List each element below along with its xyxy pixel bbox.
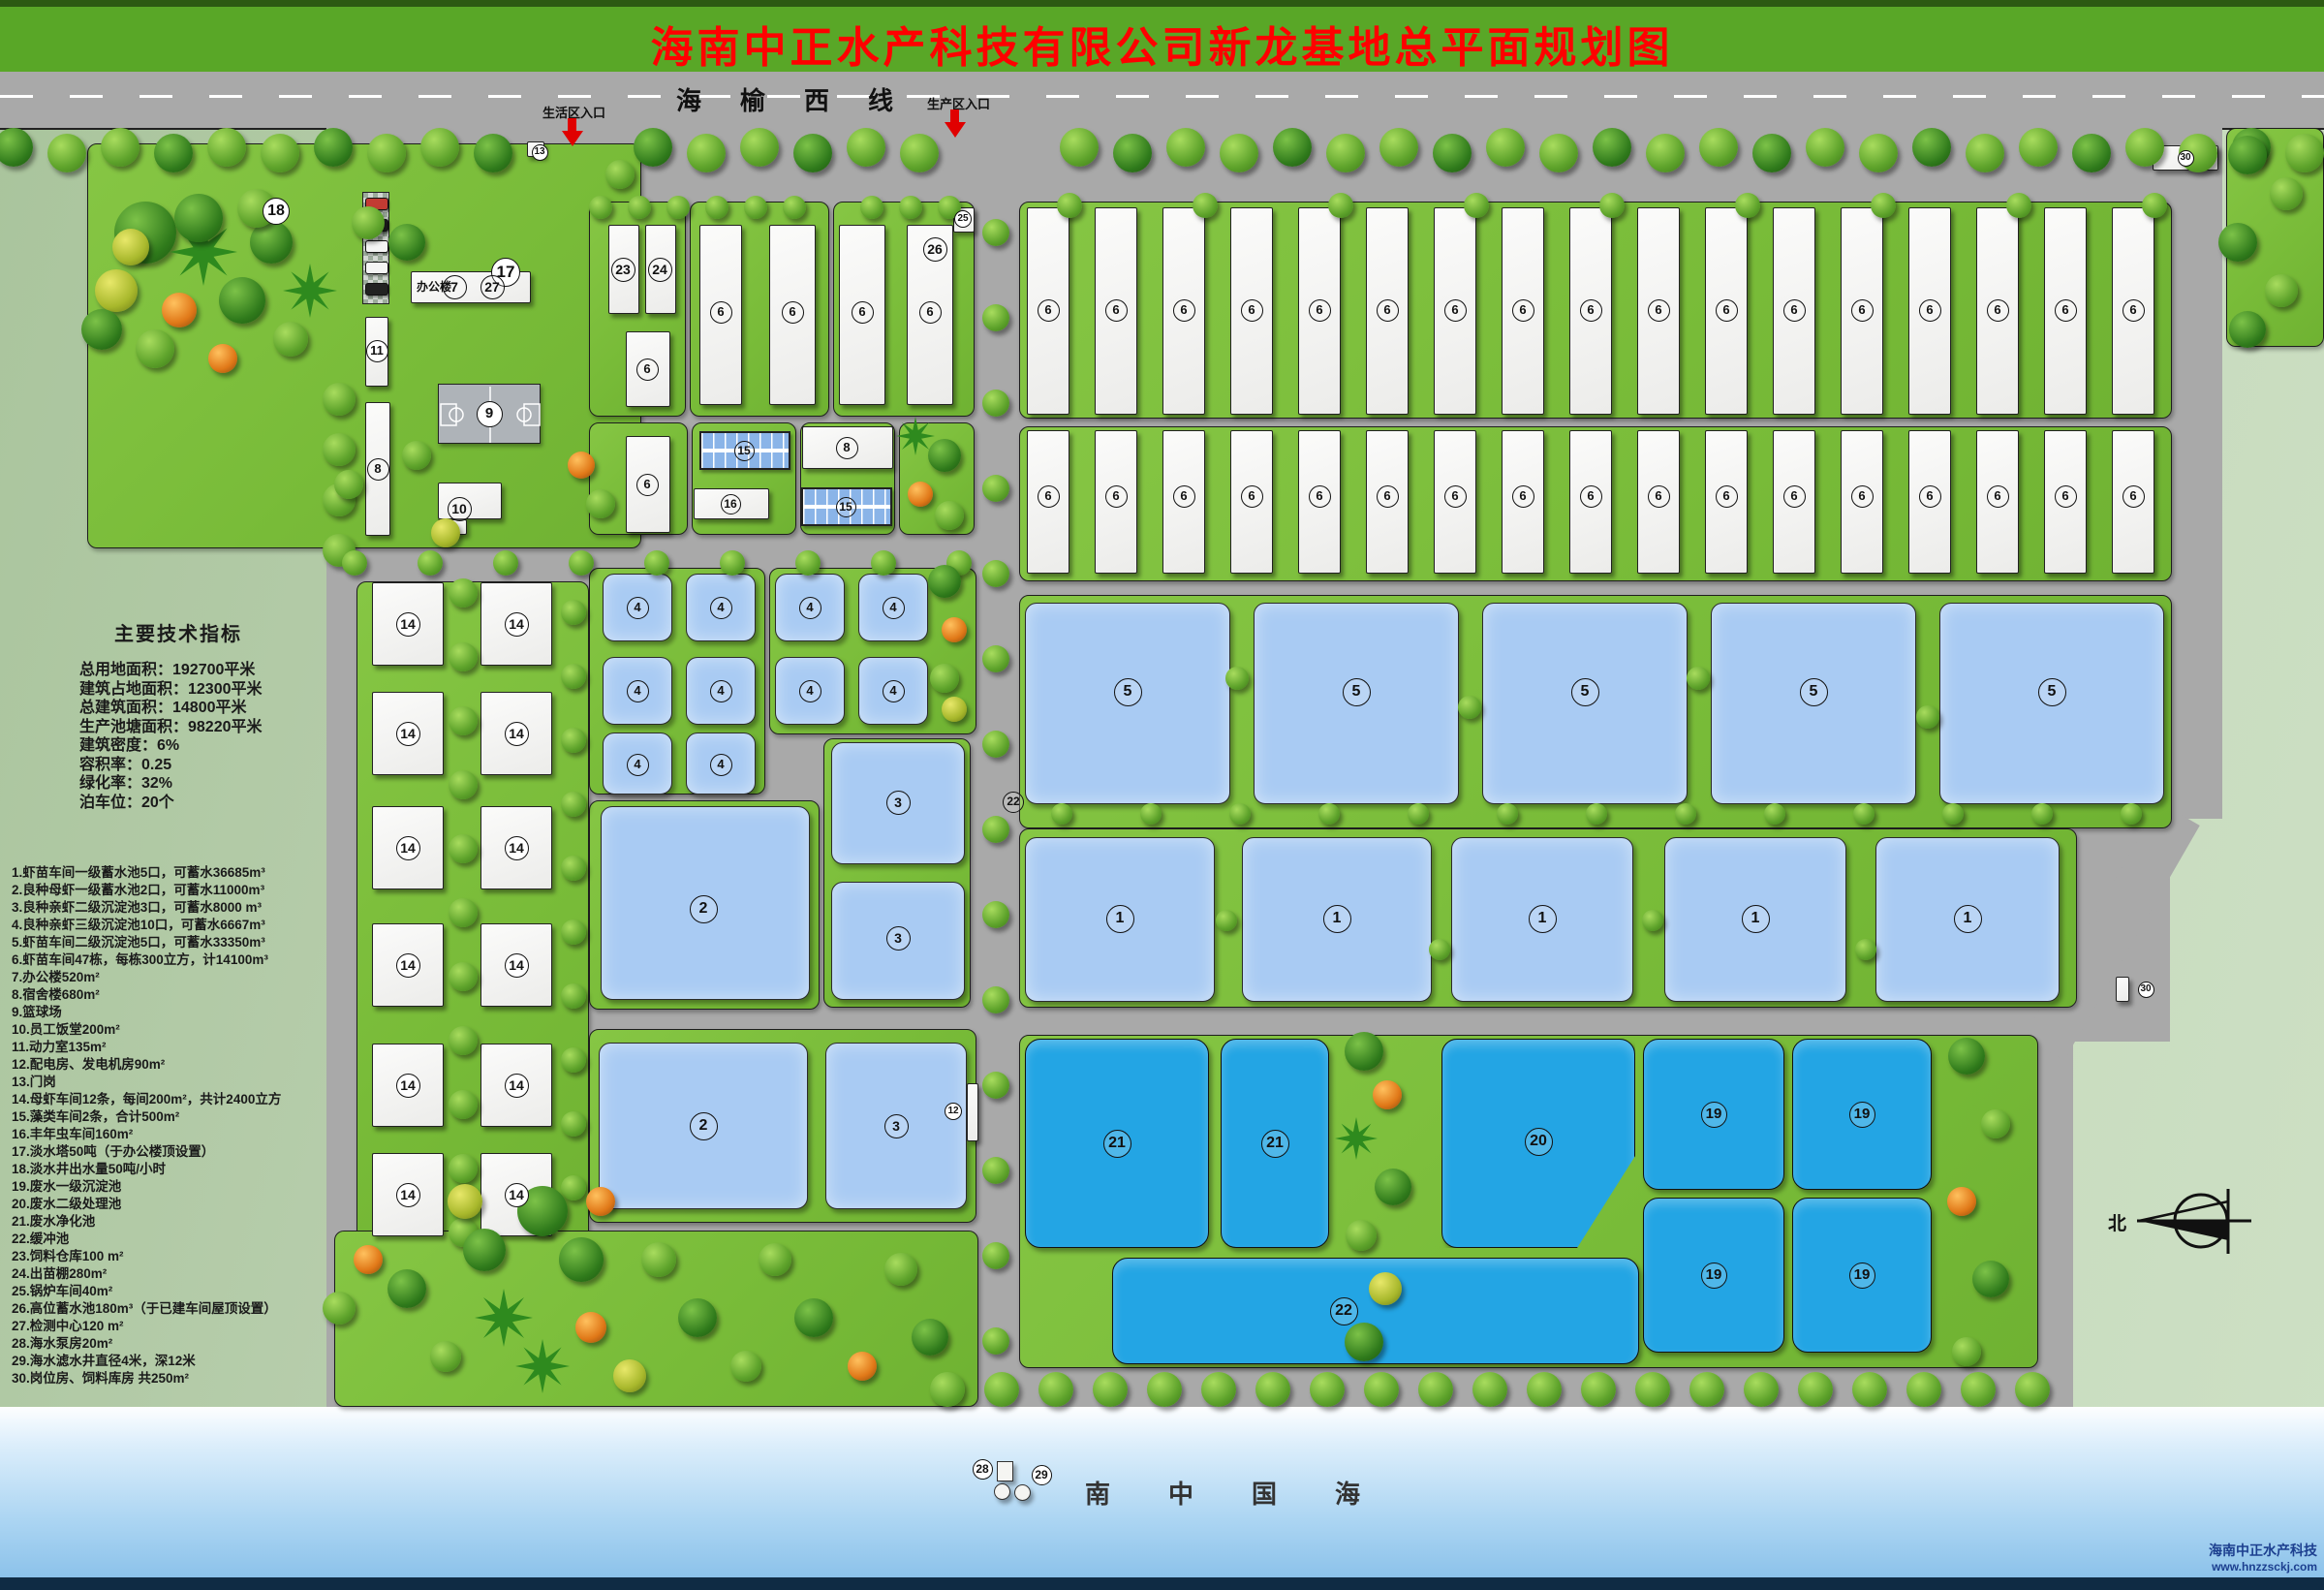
tree-icon xyxy=(586,1187,615,1216)
tree-icon xyxy=(207,128,246,167)
marker-6: 6 xyxy=(1309,299,1331,322)
tree-icon xyxy=(884,1253,917,1286)
tree-icon xyxy=(1853,803,1875,825)
marker-6: 6 xyxy=(1173,299,1195,322)
tree-icon xyxy=(1539,134,1578,172)
marker-6: 6 xyxy=(1851,299,1874,322)
tree-icon xyxy=(705,196,728,219)
tree-icon xyxy=(1642,910,1663,931)
marker-6: 6 xyxy=(1444,485,1467,508)
tree-icon xyxy=(219,277,265,324)
tree-icon xyxy=(1752,134,1791,172)
marker-6: 6 xyxy=(1648,299,1670,322)
tree-icon xyxy=(431,518,460,547)
tree-icon xyxy=(559,1237,604,1282)
tree-icon xyxy=(1871,193,1896,218)
tree-icon xyxy=(387,1269,426,1308)
tree-icon xyxy=(1060,128,1099,167)
marker-6: 6 xyxy=(1377,299,1399,322)
tree-icon xyxy=(1346,1220,1377,1251)
marker-28: 28 xyxy=(973,1459,993,1480)
tree-icon xyxy=(1216,910,1237,931)
marker-14: 14 xyxy=(396,836,420,860)
marker-6: 6 xyxy=(1783,299,1806,322)
tree-icon xyxy=(935,501,964,530)
compass-icon xyxy=(2131,1184,2259,1260)
car-icon xyxy=(365,262,388,274)
tree-icon xyxy=(1806,128,1844,167)
tree-icon xyxy=(561,600,586,625)
tree-icon xyxy=(1140,803,1162,825)
tree-icon xyxy=(628,196,651,219)
tree-icon xyxy=(95,269,138,312)
tree-icon xyxy=(449,770,478,799)
tree-icon xyxy=(1635,1372,1670,1407)
tree-icon xyxy=(982,731,1009,758)
marker-19: 19 xyxy=(1849,1102,1875,1128)
marker-6: 6 xyxy=(1716,299,1738,322)
tree-icon xyxy=(388,224,425,261)
tree-icon xyxy=(561,1047,586,1073)
tree-icon xyxy=(1689,1372,1724,1407)
tree-icon xyxy=(174,194,223,242)
watermark-company: 海南中正水产科技 xyxy=(2112,1541,2317,1560)
tree-icon xyxy=(568,452,595,479)
marker-14: 14 xyxy=(396,1183,420,1207)
tree-icon xyxy=(613,1359,646,1392)
marker-6: 6 xyxy=(1038,485,1060,508)
tree-icon xyxy=(1687,667,1710,690)
marker-6: 6 xyxy=(2055,299,2077,322)
tree-icon xyxy=(1961,1372,1996,1407)
tree-icon xyxy=(1057,193,1082,218)
marker-5: 5 xyxy=(1343,678,1371,706)
tree-icon xyxy=(982,1242,1009,1269)
tree-icon xyxy=(47,134,86,172)
tree-icon xyxy=(561,1111,586,1137)
tree-icon xyxy=(1486,128,1525,167)
tree-icon xyxy=(589,196,612,219)
tree-icon xyxy=(1113,134,1152,172)
marker-6: 6 xyxy=(919,301,942,324)
tree-icon xyxy=(1947,1187,1976,1216)
tree-icon xyxy=(323,1292,356,1325)
north-label: 北 xyxy=(2108,1209,2126,1235)
tree-icon xyxy=(515,1339,570,1393)
marker-12: 12 xyxy=(945,1103,962,1120)
marker-15: 15 xyxy=(734,441,755,461)
marker-29: 29 xyxy=(1032,1465,1052,1485)
tree-icon xyxy=(1735,193,1760,218)
tree-icon xyxy=(942,617,967,642)
marker-6: 6 xyxy=(1444,299,1467,322)
marker-14: 14 xyxy=(505,836,529,860)
tree-icon xyxy=(323,433,356,466)
tree-icon xyxy=(561,920,586,945)
tree-icon xyxy=(449,962,478,991)
marker-14: 14 xyxy=(396,612,420,637)
marker-1: 1 xyxy=(1106,905,1134,933)
marker-6: 6 xyxy=(1783,485,1806,508)
marker-30: 30 xyxy=(2178,150,2194,167)
marker-19: 19 xyxy=(1701,1263,1727,1289)
tree-icon xyxy=(136,329,174,368)
marker-6: 6 xyxy=(2123,299,2145,322)
tree-icon xyxy=(1418,1372,1453,1407)
marker-5: 5 xyxy=(1800,678,1828,706)
marker-9: 9 xyxy=(477,401,503,427)
tree-icon xyxy=(730,1351,761,1382)
tree-icon xyxy=(666,196,690,219)
tree-icon xyxy=(605,160,635,189)
tree-icon xyxy=(1744,1372,1779,1407)
marker-4: 4 xyxy=(627,680,649,702)
tree-icon xyxy=(930,664,959,693)
tree-icon xyxy=(982,219,1009,246)
tree-icon xyxy=(430,1341,461,1372)
tree-icon xyxy=(1379,128,1418,167)
marker-6: 6 xyxy=(1580,299,1602,322)
tree-icon xyxy=(1464,193,1489,218)
tree-icon xyxy=(1852,1372,1887,1407)
tree-icon xyxy=(2218,223,2257,262)
tree-icon xyxy=(871,550,896,576)
tree-icon xyxy=(2270,177,2303,210)
tree-icon xyxy=(928,439,961,472)
tree-icon xyxy=(1373,1080,1402,1109)
tree-icon xyxy=(112,229,149,265)
tree-icon xyxy=(81,309,122,350)
tree-icon xyxy=(2072,134,2111,172)
tree-icon xyxy=(1581,1372,1616,1407)
tree-icon xyxy=(793,134,832,172)
tree-icon xyxy=(561,1175,586,1200)
tree-icon xyxy=(795,550,821,576)
marker-5: 5 xyxy=(1114,678,1142,706)
tree-icon xyxy=(1326,134,1365,172)
tree-icon xyxy=(1147,1372,1182,1407)
marker-14: 14 xyxy=(396,953,420,978)
tree-icon xyxy=(352,206,385,239)
tree-icon xyxy=(474,134,512,172)
tree-icon xyxy=(2285,134,2324,172)
tree-icon xyxy=(2015,1372,2050,1407)
tree-icon xyxy=(448,1184,482,1219)
tree-icon xyxy=(449,706,478,735)
marker-6: 6 xyxy=(636,359,659,381)
tree-icon xyxy=(848,1352,877,1381)
tree-icon xyxy=(449,642,478,671)
tree-icon xyxy=(586,489,615,518)
tree-icon xyxy=(1369,1272,1402,1305)
tree-icon xyxy=(449,1154,478,1183)
tree-icon xyxy=(1328,193,1353,218)
tree-icon xyxy=(449,1090,478,1119)
tree-icon xyxy=(1273,128,1312,167)
marker-14: 14 xyxy=(505,722,529,746)
tree-icon xyxy=(1310,1372,1345,1407)
marker-6: 6 xyxy=(1919,485,1941,508)
tree-icon xyxy=(783,196,806,219)
marker-23: 23 xyxy=(611,258,635,282)
marker-6: 6 xyxy=(782,301,804,324)
marker-1: 1 xyxy=(1529,905,1557,933)
tree-icon xyxy=(1220,134,1258,172)
tree-icon xyxy=(982,901,1009,928)
car-icon xyxy=(365,240,388,253)
tree-icon xyxy=(744,196,767,219)
tree-icon xyxy=(2125,128,2164,167)
marker-2: 2 xyxy=(690,895,718,923)
tree-icon xyxy=(1966,134,2004,172)
tree-icon xyxy=(982,560,1009,587)
marker-11: 11 xyxy=(366,340,388,362)
marker-5: 5 xyxy=(1571,678,1599,706)
tree-icon xyxy=(1497,803,1518,825)
marker-1: 1 xyxy=(1742,905,1770,933)
tree-icon xyxy=(2142,193,2167,218)
tree-icon xyxy=(449,834,478,863)
tree-icon xyxy=(1255,1372,1290,1407)
tree-icon xyxy=(2229,311,2266,348)
tree-icon xyxy=(982,645,1009,672)
marker-6: 6 xyxy=(1716,485,1738,508)
tree-icon xyxy=(418,550,443,576)
tree-icon xyxy=(982,1072,1009,1099)
tree-icon xyxy=(847,128,885,167)
tree-icon xyxy=(1981,1109,2010,1138)
marker-19: 19 xyxy=(1701,1102,1727,1128)
tree-icon xyxy=(1458,696,1481,719)
tree-icon xyxy=(899,196,922,219)
marker-6: 6 xyxy=(1377,485,1399,508)
tree-icon xyxy=(794,1298,833,1337)
tree-icon xyxy=(982,390,1009,417)
marker-6: 6 xyxy=(1851,485,1874,508)
marker-24: 24 xyxy=(648,258,672,282)
tree-icon xyxy=(982,475,1009,502)
tree-icon xyxy=(1229,803,1251,825)
tree-icon xyxy=(1193,193,1218,218)
tree-icon xyxy=(860,196,883,219)
marker-13: 13 xyxy=(532,144,548,161)
marker-30: 30 xyxy=(2138,982,2154,998)
watermark: 海南中正水产科技 www.hnzzsckj.com xyxy=(2112,1541,2317,1574)
guard-post xyxy=(2116,977,2129,1002)
watermark-url: www.hnzzsckj.com xyxy=(2112,1560,2317,1574)
tree-icon xyxy=(561,856,586,881)
tree-icon xyxy=(1201,1372,1236,1407)
tree-icon xyxy=(1429,939,1450,960)
tree-icon xyxy=(367,134,406,172)
marker-6: 6 xyxy=(1105,485,1128,508)
tree-icon xyxy=(1093,1372,1128,1407)
tree-icon xyxy=(982,816,1009,843)
tree-icon xyxy=(634,128,672,167)
marker-8: 8 xyxy=(836,437,858,459)
tree-icon xyxy=(1364,1372,1399,1407)
tree-icon xyxy=(1699,128,1738,167)
tree-icon xyxy=(1948,1038,1985,1075)
marker-6: 6 xyxy=(2123,485,2145,508)
tree-icon xyxy=(1472,1372,1507,1407)
tree-icon xyxy=(154,134,193,172)
tree-icon xyxy=(261,134,299,172)
tree-icon xyxy=(984,1372,1019,1407)
tree-icon xyxy=(354,1245,383,1274)
marker-25: 25 xyxy=(954,210,972,228)
marker-6: 6 xyxy=(2055,485,2077,508)
marker-15: 15 xyxy=(836,497,856,517)
tree-icon xyxy=(1798,1372,1833,1407)
tree-icon xyxy=(314,128,353,167)
tree-icon xyxy=(561,792,586,817)
tree-icon xyxy=(1855,939,1876,960)
tree-icon xyxy=(678,1298,717,1337)
tree-icon xyxy=(1375,1169,1411,1205)
tree-icon xyxy=(449,898,478,927)
tree-icon xyxy=(561,728,586,753)
tree-icon xyxy=(1051,803,1072,825)
marker-14: 14 xyxy=(505,1074,529,1098)
marker-14: 14 xyxy=(505,612,529,637)
entrance-arrow-icon xyxy=(562,131,583,146)
map-layer: 1813177271189102324666662526615816156666… xyxy=(0,0,2324,1590)
tree-icon xyxy=(1318,803,1340,825)
marker-4: 4 xyxy=(710,754,732,776)
tree-icon xyxy=(930,1372,965,1407)
tree-icon xyxy=(463,1229,506,1271)
tree-icon xyxy=(162,293,197,327)
marker-16: 16 xyxy=(721,494,741,514)
tree-icon xyxy=(1527,1372,1562,1407)
marker-6: 6 xyxy=(1987,485,2009,508)
marker-6: 6 xyxy=(1512,299,1534,322)
tree-icon xyxy=(942,697,967,722)
tree-icon xyxy=(912,1319,948,1356)
marker-6: 6 xyxy=(1309,485,1331,508)
tree-icon xyxy=(323,383,356,416)
marker-21: 21 xyxy=(1261,1130,1289,1158)
entrance-arrow-icon xyxy=(568,118,576,131)
tree-icon xyxy=(449,578,478,608)
tree-icon xyxy=(928,565,961,598)
tree-icon xyxy=(2228,136,2267,174)
tree-icon xyxy=(641,1242,676,1277)
marker-6: 6 xyxy=(1173,485,1195,508)
marker-21: 21 xyxy=(1103,1130,1131,1158)
marker-6: 6 xyxy=(1241,485,1263,508)
tree-icon xyxy=(740,128,779,167)
marker-6: 6 xyxy=(1919,299,1941,322)
tree-icon xyxy=(402,441,431,470)
tree-icon xyxy=(900,134,939,172)
tree-icon xyxy=(561,664,586,689)
tree-icon xyxy=(687,134,726,172)
marker-6: 6 xyxy=(1241,299,1263,322)
tree-icon xyxy=(2121,803,2142,825)
tree-icon xyxy=(1599,193,1625,218)
marker-14: 14 xyxy=(396,722,420,746)
tree-icon xyxy=(1586,803,1607,825)
marker-3: 3 xyxy=(886,926,911,951)
marker-6: 6 xyxy=(636,474,659,496)
marker-4: 4 xyxy=(799,597,821,619)
tree-icon xyxy=(908,482,933,507)
tree-icon xyxy=(2265,274,2298,307)
marker-26: 26 xyxy=(923,237,947,262)
tree-icon xyxy=(569,550,594,576)
marker-6: 6 xyxy=(1038,299,1060,322)
marker-14: 14 xyxy=(396,1074,420,1098)
tree-icon xyxy=(1225,667,1249,690)
marker-4: 4 xyxy=(710,597,732,619)
marker-4: 4 xyxy=(883,597,905,619)
tree-icon xyxy=(1646,134,1685,172)
tree-icon xyxy=(2006,193,2031,218)
tree-icon xyxy=(334,470,363,499)
tree-icon xyxy=(0,128,33,167)
tree-icon xyxy=(1408,803,1429,825)
tree-icon xyxy=(982,1327,1009,1355)
tree-icon xyxy=(575,1312,606,1343)
entrance-arrow-icon xyxy=(950,109,959,122)
marker-1: 1 xyxy=(1323,905,1351,933)
marker-20: 20 xyxy=(1525,1128,1553,1156)
marker-4: 4 xyxy=(799,680,821,702)
tree-icon xyxy=(982,1157,1009,1184)
tree-icon xyxy=(273,322,308,357)
marker-18: 18 xyxy=(263,198,290,225)
tree-icon xyxy=(1952,1337,1981,1366)
site-plan: 海南中正水产科技有限公司新龙基地总平面规划图 海榆西线 南中国海 主要技术指标 … xyxy=(0,0,2324,1590)
marker-3: 3 xyxy=(884,1114,909,1138)
tree-icon xyxy=(1345,1323,1383,1361)
marker-6: 6 xyxy=(852,301,874,324)
marker-6: 6 xyxy=(1580,485,1602,508)
marker-19: 19 xyxy=(1849,1263,1875,1289)
tree-icon xyxy=(342,550,367,576)
marker-4: 4 xyxy=(883,680,905,702)
tree-icon xyxy=(2031,803,2053,825)
marker-1: 1 xyxy=(1954,905,1982,933)
marker-6: 6 xyxy=(710,301,732,324)
tree-icon xyxy=(420,128,459,167)
marker-14: 14 xyxy=(505,953,529,978)
tree-icon xyxy=(1038,1372,1073,1407)
tree-icon xyxy=(720,550,745,576)
marker-6: 6 xyxy=(1987,299,2009,322)
marker-10: 10 xyxy=(448,497,472,521)
tree-icon xyxy=(475,1289,533,1347)
tree-icon xyxy=(1906,1372,1941,1407)
tree-icon xyxy=(1593,128,1631,167)
marker-4: 4 xyxy=(627,597,649,619)
tree-icon xyxy=(1916,705,1939,729)
tree-icon xyxy=(1859,134,1898,172)
marker-22: 22 xyxy=(1330,1297,1358,1325)
marker-6: 6 xyxy=(1648,485,1670,508)
marker-2: 2 xyxy=(690,1112,718,1140)
tree-icon xyxy=(493,550,518,576)
tree-icon xyxy=(644,550,669,576)
marker-6: 6 xyxy=(1105,299,1128,322)
tree-icon xyxy=(2019,128,2058,167)
tree-icon xyxy=(1764,803,1785,825)
tree-icon xyxy=(982,304,1009,331)
marker-4: 4 xyxy=(627,754,649,776)
marker-4: 4 xyxy=(710,680,732,702)
